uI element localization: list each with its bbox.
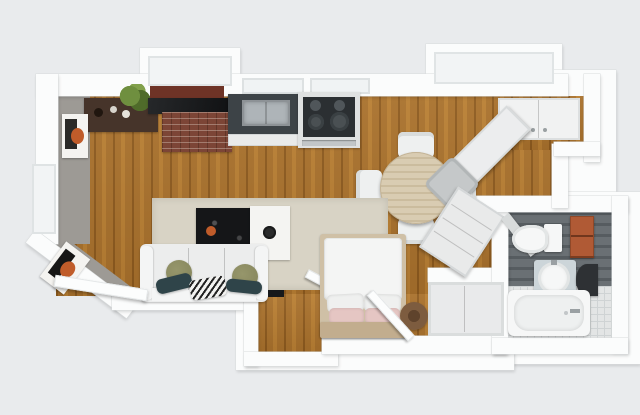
bathtub-drain (564, 311, 568, 315)
bathroom-top-wall (472, 196, 628, 212)
sideboard-decor-vase (110, 106, 117, 113)
alcove-bottom-wall (554, 142, 600, 156)
shelf-divider (571, 235, 593, 237)
toilet-bowl (512, 225, 548, 253)
art-orange-circle (71, 128, 84, 144)
sleeping-nook-bottom-wall (322, 336, 506, 354)
coffee-table-orange-decor (206, 226, 216, 236)
bathroom-right-wall (612, 196, 628, 352)
nesting-table-bowl (263, 226, 276, 239)
wall-art-top-left (62, 114, 88, 158)
closet-interior-line (464, 286, 465, 332)
sideboard-decor-bowl (94, 108, 103, 117)
bathtub-faucet (570, 309, 580, 313)
closet-handle-left (531, 128, 535, 132)
brick-chimney (162, 112, 232, 152)
burner-front-right (330, 112, 349, 131)
floor-speaker (268, 290, 284, 297)
sink-divider (265, 102, 267, 124)
bed-duvet (324, 238, 402, 300)
burner-back-right (334, 100, 345, 111)
burner-back-left (310, 100, 321, 111)
closet-door-gap (538, 100, 539, 138)
built-in-closet (428, 282, 504, 336)
bathtub (508, 290, 590, 336)
sink-faucet (551, 260, 557, 265)
floor-plan-canvas (0, 0, 640, 415)
kitchen-sink (242, 100, 290, 126)
stove (298, 92, 360, 148)
window-top-mid-1 (242, 78, 304, 94)
potted-plant (118, 84, 152, 114)
entry-niche-bottom-wall (244, 352, 338, 366)
terracotta-shelf (570, 216, 594, 258)
bathtub-basin (514, 295, 584, 331)
bathroom-bottom-wall (492, 338, 628, 354)
closet-handle-right (543, 128, 547, 132)
burner-front-left (308, 114, 324, 130)
window-left-wall (32, 164, 56, 234)
oven-handle (302, 140, 356, 146)
bay-window-left-sill (148, 56, 232, 86)
bay-window-right-sill (434, 52, 554, 84)
